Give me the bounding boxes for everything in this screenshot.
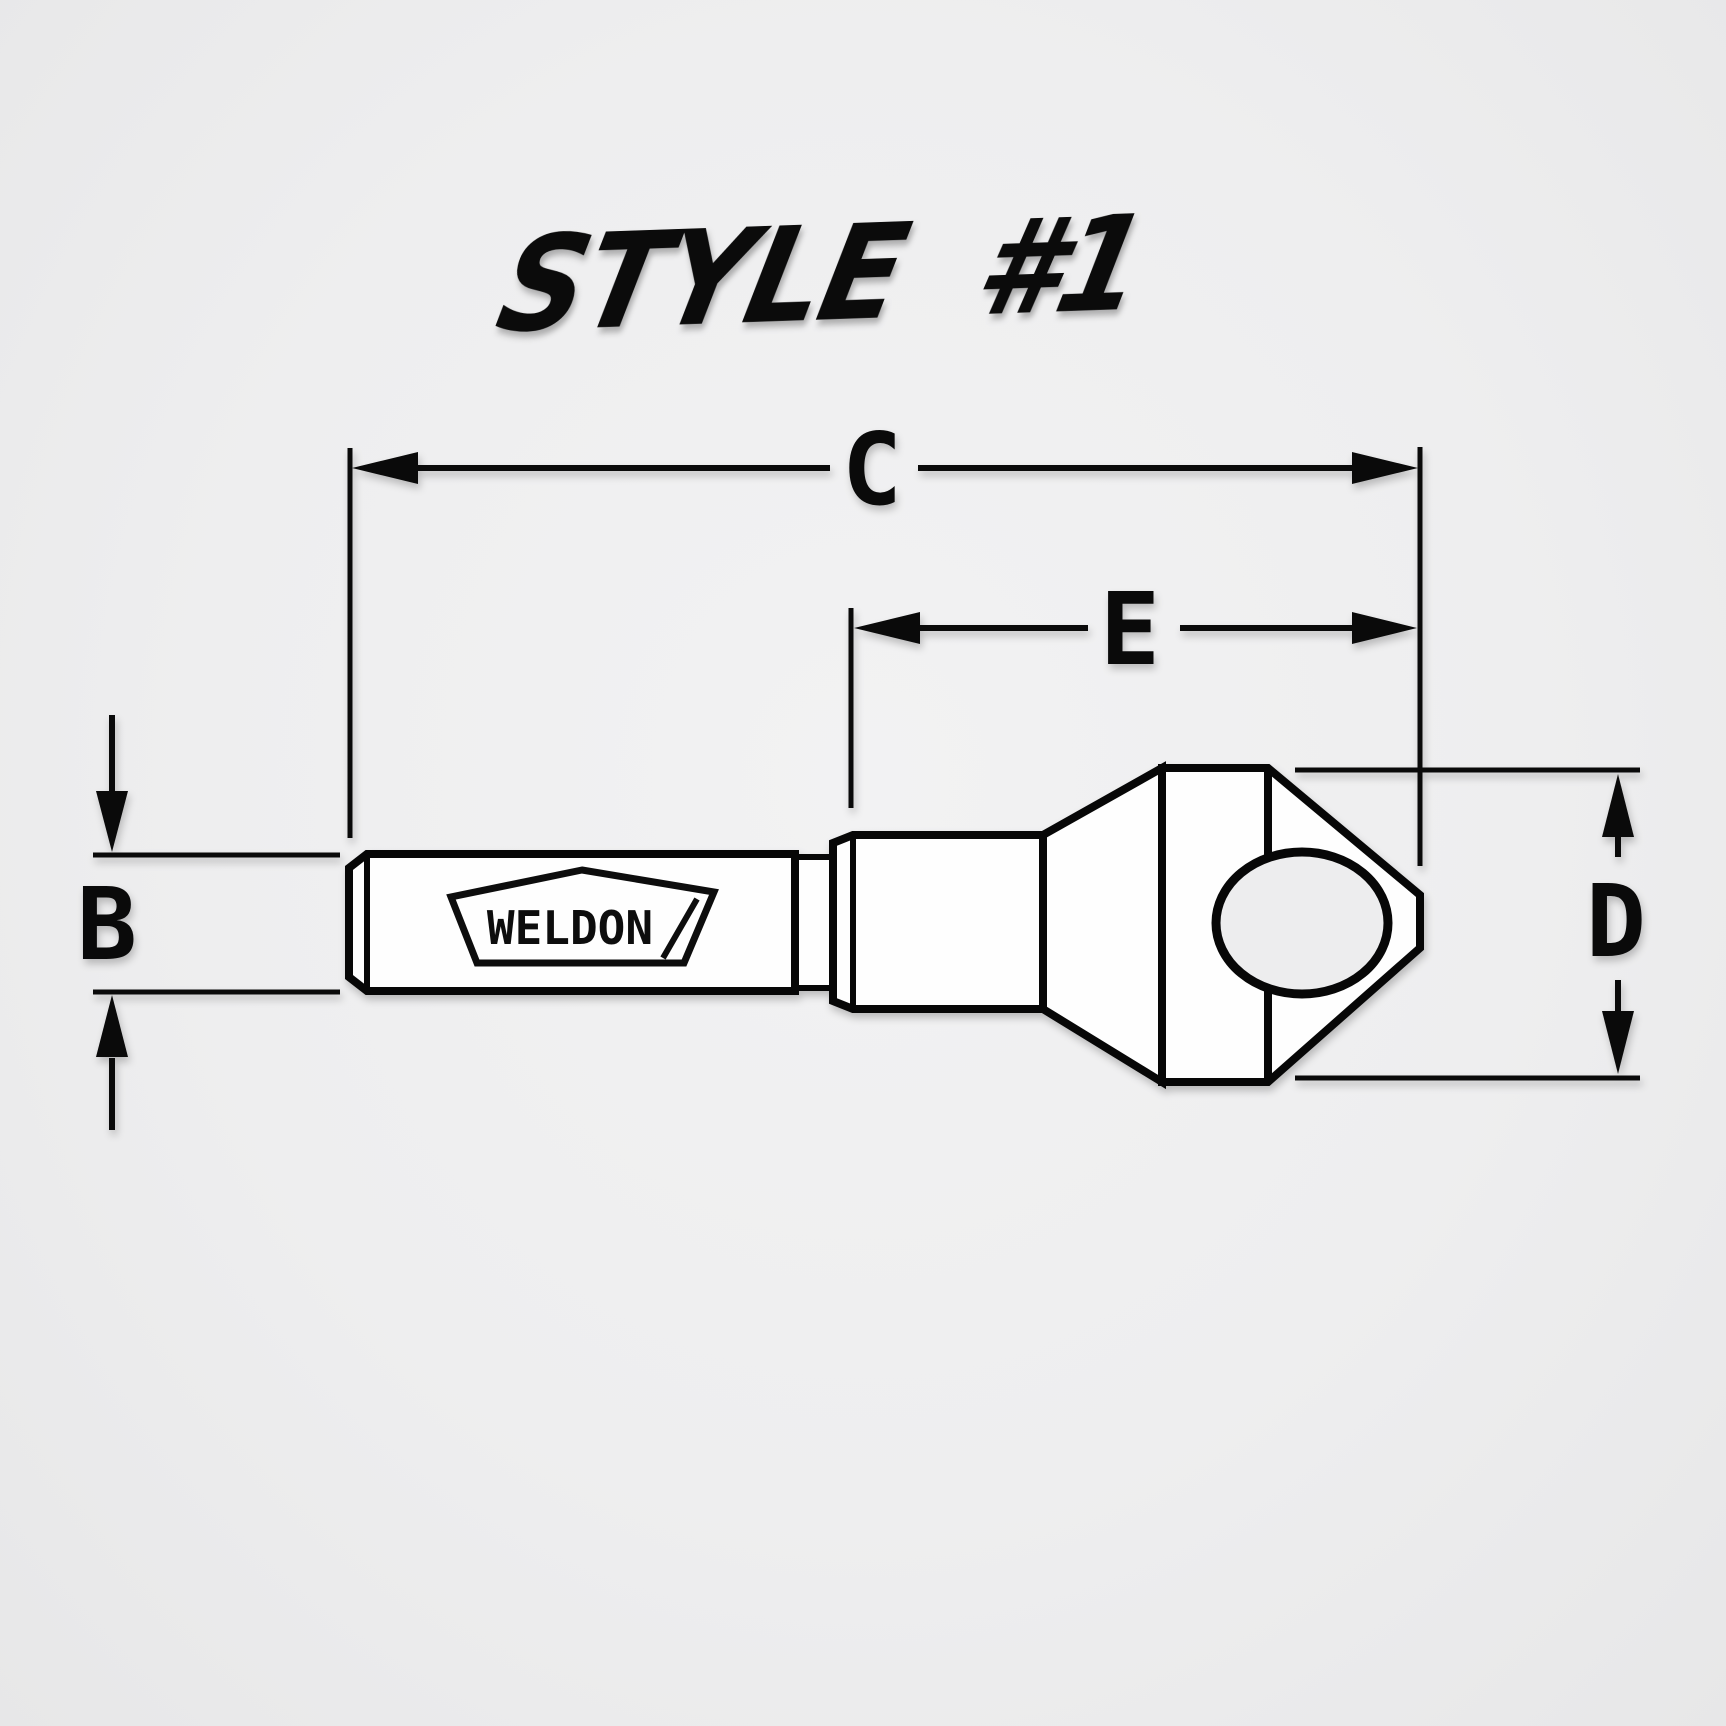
tool-collar xyxy=(833,835,1043,1009)
tool-neck xyxy=(795,857,833,988)
c-dimension-label: C xyxy=(842,411,902,528)
d-arrowhead-up-icon xyxy=(1602,774,1634,837)
tool-cone xyxy=(1043,768,1162,1082)
tool-body: WELDON xyxy=(349,768,1420,1082)
d-arrowhead-down-icon xyxy=(1602,1011,1634,1074)
e-arrowhead-right-icon xyxy=(1352,612,1417,644)
technical-drawing: C E B D xyxy=(0,0,1726,1726)
e-dimension-label: E xyxy=(1100,571,1160,688)
b-arrowhead-down-icon xyxy=(96,791,128,852)
dimension-b: B xyxy=(77,715,340,1130)
e-arrowhead-left-icon xyxy=(854,612,920,644)
head-through-hole xyxy=(1216,852,1388,994)
diagram-canvas: STYLE #1 C E B xyxy=(0,0,1726,1726)
d-dimension-label: D xyxy=(1586,863,1646,980)
b-dimension-label: B xyxy=(77,866,137,983)
c-arrowhead-left-icon xyxy=(352,452,418,484)
brand-name: WELDON xyxy=(487,901,653,955)
b-arrowhead-up-icon xyxy=(96,995,128,1057)
c-arrowhead-right-icon xyxy=(1352,452,1418,484)
